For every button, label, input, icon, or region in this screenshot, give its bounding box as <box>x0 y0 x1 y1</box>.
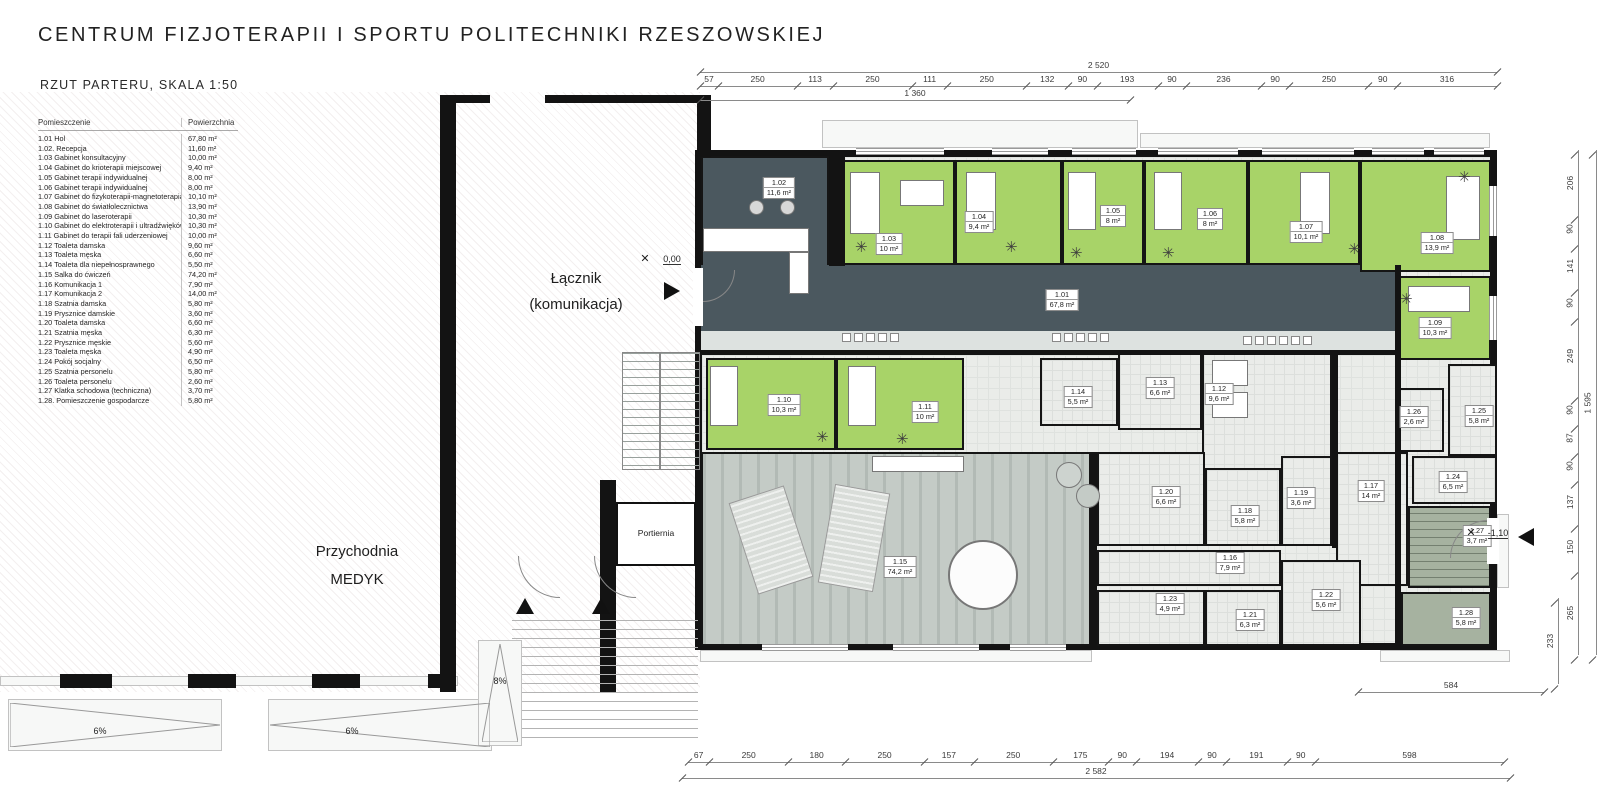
dim-bottom-total: 2 582 <box>682 766 1510 782</box>
room-area: 2,6 m² <box>1401 418 1428 427</box>
seat-icon <box>890 333 899 342</box>
seat-icon <box>1088 333 1097 342</box>
seat-icon <box>1255 336 1264 345</box>
annotation-text: Portiernia <box>638 528 674 538</box>
terrace-outline <box>1140 133 1490 148</box>
plant-icon: ✳ <box>1005 240 1018 255</box>
dim-value: 1 360 <box>700 88 1130 98</box>
wall-segment <box>440 95 456 692</box>
dim-value: 250 <box>709 750 788 760</box>
dim-value: 132 <box>1026 74 1068 84</box>
dim-value: 1 595 <box>1581 150 1595 655</box>
dim-top-sub: 1 360 <box>700 88 1130 104</box>
waiting-seats <box>1243 336 1315 346</box>
seat-icon <box>878 333 887 342</box>
dim-value: 236 <box>1186 74 1261 84</box>
annotation-text: -1,10 <box>1488 528 1509 539</box>
room-number: 1.07 <box>1291 222 1322 232</box>
furniture-rect <box>1068 172 1096 230</box>
room-label-1.13: 1.136,6 m² <box>1146 377 1175 399</box>
entrance-arrow-icon <box>1518 528 1534 546</box>
seat-icon <box>1243 336 1252 345</box>
terrace-outline <box>822 120 1138 148</box>
wall-segment <box>545 95 711 103</box>
furniture-circle <box>1056 462 1082 488</box>
dim-value: 249 <box>1563 317 1577 396</box>
dim-value: 316 <box>1397 74 1497 84</box>
seat-icon <box>842 333 851 342</box>
dim-tick <box>1551 685 1559 693</box>
dim-value: 90 <box>1368 74 1396 84</box>
room-label-1.19: 1.193,6 m² <box>1287 487 1316 509</box>
waiting-seats <box>842 333 902 343</box>
seat-icon <box>1267 336 1276 345</box>
room-label-1.16: 1.167,9 m² <box>1216 552 1245 574</box>
window-icon <box>856 148 944 155</box>
room-number: 1.06 <box>1198 209 1222 219</box>
room-label-1.18: 1.185,8 m² <box>1231 505 1260 527</box>
room-area: 5,8 m² <box>1466 417 1493 426</box>
room-number: 1.16 <box>1217 553 1244 563</box>
room-number: 1.03 <box>877 234 902 244</box>
room-label-1.25: 1.255,8 m² <box>1465 405 1494 427</box>
annotation-text: Łącznik <box>551 270 602 287</box>
room-label-1.14: 1.145,5 m² <box>1064 386 1093 408</box>
dim-value-text: 1 595 <box>1583 392 1593 413</box>
room-area: 10 m² <box>913 413 938 422</box>
dim-line <box>700 86 1497 87</box>
dim-annex-width: 584 <box>1358 680 1544 696</box>
furniture-rect <box>1154 172 1182 230</box>
ramp-triangle-icon <box>10 703 220 747</box>
room-label-1.04: 1.049,4 m² <box>965 211 994 233</box>
room-area: 74,2 m² <box>885 568 916 577</box>
dim-value: 250 <box>1289 74 1368 84</box>
room-number: 1.04 <box>966 212 993 222</box>
wall-segment <box>1090 452 1097 648</box>
furniture-rect <box>710 366 738 426</box>
window-icon <box>1489 296 1497 340</box>
wall-segment <box>428 674 456 688</box>
room-label-1.03: 1.0310 m² <box>876 233 903 255</box>
room-number: 1.23 <box>1157 594 1184 604</box>
annotation-ramp6a: 6% <box>80 726 120 736</box>
furniture-rect <box>850 172 880 234</box>
room-label-1.24: 1.246,5 m² <box>1439 471 1468 493</box>
room-area: 4,9 m² <box>1157 605 1184 614</box>
room-label-1.07: 1.0710,1 m² <box>1290 221 1323 243</box>
staircase-icon <box>622 352 700 470</box>
dim-value: 137 <box>1563 480 1577 523</box>
seat-icon <box>1303 336 1312 345</box>
window-icon <box>1010 644 1066 651</box>
room-area: 8 m² <box>1198 220 1222 229</box>
dim-value: 175 <box>1053 750 1108 760</box>
dim-value: 111 <box>912 74 947 84</box>
room-number: 1.26 <box>1401 407 1428 417</box>
dim-line <box>688 762 1504 763</box>
dim-value-text: 141 <box>1565 259 1575 273</box>
room-label-1.11: 1.1110 m² <box>912 401 939 423</box>
annotation-text: ✕ <box>1466 527 1475 539</box>
annotation-text: Przychodnia <box>316 543 399 560</box>
dim-value-text: 265 <box>1565 606 1575 620</box>
room-label-1.17: 1.1714 m² <box>1358 480 1385 502</box>
entrance-arrow-icon <box>516 598 534 614</box>
annotation-text: ✕ <box>640 253 649 265</box>
room-1.16 <box>1097 550 1281 586</box>
furniture-circle <box>948 540 1018 610</box>
room-number: 1.19 <box>1288 488 1315 498</box>
room-area: 10,3 m² <box>1420 329 1451 338</box>
plant-icon: ✳ <box>1162 246 1175 261</box>
wall-segment <box>701 350 1395 355</box>
furniture-rect <box>900 180 944 206</box>
furniture-rect <box>1408 286 1470 312</box>
dim-value-text: 249 <box>1565 349 1575 363</box>
dim-value: 157 <box>924 750 974 760</box>
room-label-1.09: 1.0910,3 m² <box>1419 317 1452 339</box>
furniture-circle <box>749 200 764 215</box>
room-number: 1.20 <box>1153 487 1180 497</box>
room-label-1.10: 1.1010,3 m² <box>768 394 801 416</box>
annotation-lacznik_line2: (komunikacja) <box>456 296 696 313</box>
annotation-portiernia: Portiernia <box>616 528 696 538</box>
dim-value: 150 <box>1563 524 1577 571</box>
plant-icon: ✳ <box>855 240 868 255</box>
room-number: 1.28 <box>1453 608 1480 618</box>
room-number: 1.25 <box>1466 406 1493 416</box>
room-label-1.26: 1.262,6 m² <box>1400 406 1429 428</box>
seat-icon <box>1076 333 1085 342</box>
dim-value: 193 <box>1097 74 1158 84</box>
terrace-outline <box>700 650 1092 662</box>
dim-value-text: 90 <box>1565 298 1575 307</box>
annotation-level_zero: 0,00 <box>652 254 692 264</box>
annotation-text: (komunikacja) <box>529 296 622 313</box>
room-number: 1.11 <box>913 402 938 412</box>
annotation-level_minus: -1,10 <box>1478 528 1518 538</box>
dim-tick <box>1589 656 1597 664</box>
plant-icon: ✳ <box>1400 292 1413 307</box>
annotation-level_zero_x: ✕ <box>638 252 652 265</box>
seat-icon <box>1052 333 1061 342</box>
room-area: 11,6 m² <box>764 189 794 198</box>
dim-annex-height: 233 <box>1546 598 1562 684</box>
seat-icon <box>854 333 863 342</box>
annotation-lacznik_line1: Łącznik <box>456 270 696 287</box>
dim-bottom-segments: 67250180250157250175901949019190598 <box>688 750 1504 766</box>
dim-value: 206 <box>1563 150 1577 215</box>
dim-value: 250 <box>845 750 924 760</box>
seat-icon <box>1279 336 1288 345</box>
dim-value: 191 <box>1226 750 1286 760</box>
room-number: 1.12 <box>1206 384 1233 394</box>
wall-segment <box>188 674 236 688</box>
annotation-level_minus_x: ✕ <box>1464 526 1478 539</box>
room-number: 1.21 <box>1237 610 1264 620</box>
window-icon <box>1262 148 1354 155</box>
room-number: 1.15 <box>885 557 916 567</box>
dim-value-text: 90 <box>1565 461 1575 470</box>
window-icon <box>1489 186 1497 236</box>
room-label-1.12: 1.129,6 m² <box>1205 383 1234 405</box>
room-area: 6,3 m² <box>1237 621 1264 630</box>
plant-icon: ✳ <box>816 430 829 445</box>
annotation-ramp8: 8% <box>482 676 518 686</box>
room-label-1.02: 1.0211,6 m² <box>763 177 795 199</box>
dim-line <box>1596 150 1597 655</box>
furniture-rect <box>848 366 876 426</box>
furniture-circle <box>1076 484 1100 508</box>
dim-line <box>682 778 1510 779</box>
dim-value: 2 520 <box>700 60 1497 70</box>
annotation-medyk_line2: MEDYK <box>237 571 477 588</box>
room-1.23 <box>1097 590 1205 646</box>
annotation-text: 6% <box>93 726 106 736</box>
wall-segment <box>829 156 845 266</box>
annotation-text: 8% <box>493 676 506 686</box>
dim-value: 250 <box>718 74 797 84</box>
furniture-rect <box>659 352 661 470</box>
exterior-steps <box>512 620 698 746</box>
dim-value-text: 150 <box>1565 540 1575 554</box>
room-label-1.22: 1.225,6 m² <box>1312 589 1341 611</box>
entrance-arrow-icon <box>592 598 610 614</box>
room-number: 1.02 <box>764 178 794 188</box>
room-number: 1.13 <box>1147 378 1174 388</box>
dim-value: 233 <box>1543 598 1557 684</box>
window-icon <box>992 148 1048 155</box>
annotation-text: MEDYK <box>330 571 383 588</box>
seat-icon <box>1064 333 1073 342</box>
dim-line <box>1558 598 1559 684</box>
room-area: 10,3 m² <box>769 406 800 415</box>
room-number: 1.18 <box>1232 506 1259 516</box>
room-area: 5,6 m² <box>1313 601 1340 610</box>
wall-segment <box>456 95 490 103</box>
room-area: 9,4 m² <box>966 223 993 232</box>
room-label-1.28: 1.285,8 m² <box>1452 607 1481 629</box>
annotation-medyk_line1: Przychodnia <box>237 543 477 560</box>
room-area: 5,8 m² <box>1232 517 1259 526</box>
window-icon <box>1072 148 1136 155</box>
dim-value: 194 <box>1136 750 1197 760</box>
room-label-1.01: 1.0167,8 m² <box>1046 289 1079 311</box>
room-number: 1.22 <box>1313 590 1340 600</box>
dim-line <box>1578 150 1579 655</box>
room-area: 9,6 m² <box>1206 395 1233 404</box>
page-title: CENTRUM FIZJOTERAPII I SPORTU POLITECHNI… <box>38 24 825 47</box>
plant-icon: ✳ <box>1458 170 1471 185</box>
dim-value: 180 <box>788 750 845 760</box>
room-area: 6,6 m² <box>1153 498 1180 507</box>
dim-value-text: 90 <box>1565 405 1575 414</box>
dim-right-segments: 2069014190249908790137150265 <box>1566 150 1582 655</box>
dim-value: 250 <box>947 74 1026 84</box>
window-icon <box>1158 148 1238 155</box>
plant-icon: ✳ <box>896 432 909 447</box>
ramp-triangle-icon <box>482 644 518 742</box>
dim-value-text: 87 <box>1565 433 1575 442</box>
furniture-rect <box>872 456 964 472</box>
room-area: 14 m² <box>1359 492 1384 501</box>
furniture-rect <box>703 228 809 252</box>
room-number: 1.24 <box>1440 472 1467 482</box>
room-number: 1.08 <box>1422 233 1453 243</box>
room-number: 1.01 <box>1047 290 1078 300</box>
seat-icon <box>866 333 875 342</box>
room-area: 3,6 m² <box>1288 499 1315 508</box>
room-area: 10 m² <box>877 245 902 254</box>
room-label-1.05: 1.058 m² <box>1100 205 1126 227</box>
room-area: 7,9 m² <box>1217 564 1244 573</box>
window-icon <box>1434 148 1484 155</box>
plan-subtitle: RZUT PARTERU, SKALA 1:50 <box>40 78 238 92</box>
dim-line <box>700 72 1497 73</box>
dim-value-text: 233 <box>1545 634 1555 648</box>
dim-value-text: 137 <box>1565 495 1575 509</box>
dim-line <box>700 100 1130 101</box>
dim-right-total: 1 595 <box>1584 150 1600 655</box>
dim-value: 2 582 <box>682 766 1510 776</box>
wall-segment <box>697 95 711 157</box>
room-area: 5,8 m² <box>1453 619 1480 628</box>
window-icon <box>1372 148 1424 155</box>
plant-icon: ✳ <box>1070 246 1083 261</box>
dim-value: 584 <box>1358 680 1544 690</box>
room-label-1.20: 1.206,6 m² <box>1152 486 1181 508</box>
ramp-triangle-icon <box>270 703 490 747</box>
wall-segment <box>312 674 360 688</box>
room-label-1.23: 1.234,9 m² <box>1156 593 1185 615</box>
dim-value-text: 206 <box>1565 176 1575 190</box>
floor-plan-canvas: CENTRUM FIZJOTERAPII I SPORTU POLITECHNI… <box>0 0 1600 800</box>
room-number: 1.09 <box>1420 318 1451 328</box>
room-label-1.06: 1.068 m² <box>1197 208 1223 230</box>
room-label-1.08: 1.0813,9 m² <box>1421 232 1454 254</box>
furniture-rect <box>789 252 809 294</box>
furniture-circle <box>780 200 795 215</box>
plant-icon: ✳ <box>1348 242 1361 257</box>
dim-value: 141 <box>1563 244 1577 289</box>
dim-value: 113 <box>797 74 833 84</box>
annotation-ramp6b: 6% <box>332 726 372 736</box>
annotation-text: 0,00 <box>663 254 681 265</box>
dim-line <box>1358 692 1544 693</box>
dim-value: 250 <box>974 750 1053 760</box>
dim-value: 265 <box>1563 571 1577 655</box>
dim-tick <box>1571 656 1579 664</box>
waiting-seats <box>1052 333 1112 343</box>
room-area: 67,8 m² <box>1047 301 1078 310</box>
window-icon <box>893 644 979 651</box>
dim-value: 598 <box>1315 750 1504 760</box>
wall-segment <box>1332 352 1338 548</box>
wall-segment <box>60 674 112 688</box>
room-number: 1.17 <box>1359 481 1384 491</box>
room-number: 1.10 <box>769 395 800 405</box>
room-area: 8 m² <box>1101 217 1125 226</box>
room-number: 1.05 <box>1101 206 1125 216</box>
seat-icon <box>1291 336 1300 345</box>
room-label-1.15: 1.1574,2 m² <box>884 556 917 578</box>
annotation-text: 6% <box>345 726 358 736</box>
dim-value-text: 90 <box>1565 225 1575 234</box>
room-area: 13,9 m² <box>1422 244 1453 253</box>
dim-value: 250 <box>833 74 912 84</box>
room-area: 10,1 m² <box>1291 233 1322 242</box>
room-area: 5,5 m² <box>1065 398 1092 407</box>
room-area: 6,6 m² <box>1147 389 1174 398</box>
room-area: 6,5 m² <box>1440 483 1467 492</box>
room-label-1.21: 1.216,3 m² <box>1236 609 1265 631</box>
wall-segment <box>1395 265 1401 648</box>
seat-icon <box>1100 333 1109 342</box>
terrace-outline <box>1380 650 1510 662</box>
room-number: 1.14 <box>1065 387 1092 397</box>
window-icon <box>762 644 848 651</box>
